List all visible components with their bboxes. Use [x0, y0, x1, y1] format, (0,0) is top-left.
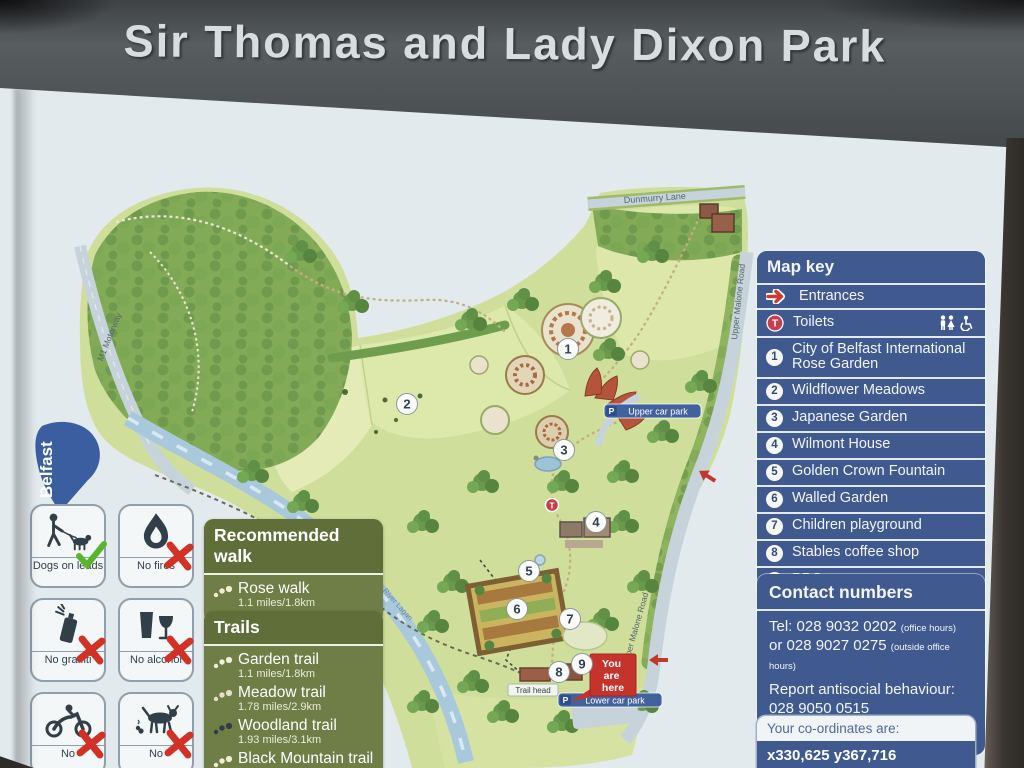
walk-distance: 1.1 miles/1.8km — [238, 597, 315, 610]
belfast-logo-text: Belfast — [37, 441, 56, 498]
park-rules-grid: Dogs on leads No fires — [30, 504, 202, 768]
key-item: 3 Japanese Garden — [757, 404, 985, 431]
key-label: Wilmont House — [792, 437, 890, 452]
cross-icon — [162, 634, 196, 671]
key-number-badge: 1 — [766, 349, 783, 366]
map-marker: 8 — [549, 662, 570, 683]
rule-no-alcohol: No alcohol — [118, 598, 194, 682]
key-number-badge: 5 — [766, 464, 783, 481]
cross-icon — [162, 540, 196, 577]
key-item: 2 Wildflower Meadows — [757, 377, 985, 404]
cross-icon — [74, 728, 108, 765]
trail-garden: Garden trail 1.1 miles/1.8km — [212, 652, 375, 681]
trail-distance: 1.1 miles/1.8km — [238, 668, 319, 681]
map-marker: 5 — [519, 561, 540, 582]
p-icon: P — [609, 406, 615, 416]
trail-distance: 1.78 miles/2.9km — [238, 701, 326, 714]
map-marker: 9 — [572, 654, 593, 675]
p-icon: P — [563, 695, 569, 705]
key-label: Walled Garden — [792, 491, 888, 506]
key-label: Wildflower Meadows — [792, 383, 925, 398]
contact-tel-2: or 028 9027 0275 (outside office hours) — [769, 637, 973, 675]
svg-text:6: 6 — [513, 602, 520, 617]
svg-text:3: 3 — [560, 443, 567, 458]
rule-no-graffiti: No graffiti — [30, 598, 106, 682]
trail-name: Black Mountain trail — [238, 751, 373, 767]
svg-text:T: T — [550, 502, 555, 511]
trail-dots-icon — [212, 689, 234, 703]
svg-text:5: 5 — [525, 564, 532, 579]
trail-dots-icon — [212, 656, 234, 670]
map-marker: 2 — [397, 394, 418, 415]
rule-no-fires: No fires — [118, 504, 194, 588]
trail-dots-icon — [212, 722, 234, 736]
key-entrances: Entrances — [757, 283, 985, 308]
rule-dogs-on-leads: Dogs on leads — [30, 504, 106, 588]
key-number-badge: 8 — [766, 545, 783, 562]
svg-text:1: 1 — [564, 342, 571, 357]
recommended-walk-title: Recommended walk — [204, 519, 383, 575]
map-marker: 3 — [554, 440, 575, 461]
key-number-badge: 2 — [766, 383, 783, 400]
map-key-title: Map key — [757, 251, 985, 283]
photo-corner-shadow — [824, 0, 1024, 30]
key-label: Entrances — [799, 289, 864, 304]
toilets-accessibility-icons — [938, 315, 976, 331]
svg-text:9: 9 — [578, 657, 585, 672]
coordinates-panel: Your co-ordinates are: x330,625 y367,716 — [757, 716, 975, 768]
svg-text:4: 4 — [592, 515, 600, 530]
coordinates-title: Your co-ordinates are: — [757, 716, 975, 741]
svg-text:Lower car park: Lower car park — [585, 696, 645, 706]
trail-dots-icon — [212, 755, 234, 768]
key-item: 4 Wilmont House — [757, 431, 985, 458]
svg-text:T: T — [772, 319, 778, 330]
trail-name: Meadow trail — [238, 685, 326, 701]
map-marker: 1 — [558, 339, 579, 360]
key-number-badge: 7 — [766, 518, 783, 535]
svg-text:Trail head: Trail head — [515, 686, 550, 695]
trails-title: Trails — [204, 611, 383, 646]
trail-name: Garden trail — [238, 652, 319, 668]
key-label: Stables coffee shop — [792, 545, 919, 560]
trail-head-label: Trail head — [508, 684, 558, 696]
park-sign-photo: Dunmurry Lane Upper Malone Road Upper Ma… — [0, 0, 1024, 768]
trail-name: Woodland trail — [238, 718, 337, 734]
key-item: 7 Children playground — [757, 512, 985, 539]
trail-distance: 1.93 miles/3.1km — [238, 734, 337, 747]
key-item: 1 City of Belfast International Rose Gar… — [757, 336, 985, 376]
cross-icon — [74, 634, 108, 671]
key-label: Children playground — [792, 518, 922, 533]
walk-rose-walk: Rose walk 1.1 miles/1.8km — [212, 581, 375, 610]
key-number-badge: 6 — [766, 491, 783, 508]
key-label: City of Belfast International Rose Garde… — [792, 342, 976, 372]
photo-corner-shadow — [0, 0, 120, 34]
key-label: Golden Crown Fountain — [792, 464, 945, 479]
svg-text:7: 7 — [566, 612, 573, 627]
recommended-walk-panel: Recommended walk Rose walk 1.1 miles/1.8… — [204, 519, 383, 623]
svg-text:Upper car park: Upper car park — [628, 407, 688, 417]
trail-meadow: Meadow trail 1.78 miles/2.9km — [212, 685, 375, 714]
key-number-badge: 4 — [766, 437, 783, 454]
svg-text:2: 2 — [403, 397, 410, 412]
upper-car-park-label: P Upper car park — [604, 404, 701, 418]
check-icon — [74, 540, 108, 575]
key-item: 8 Stables coffee shop — [757, 539, 985, 566]
toilet-map-marker: T — [546, 499, 559, 512]
map-key-panel: Map key Entrances T Toilets — [757, 251, 985, 593]
map-marker: 4 — [586, 512, 607, 533]
coordinates-value: x330,625 y367,716 — [757, 741, 975, 768]
cross-icon — [162, 728, 196, 765]
toilet-badge-icon: T — [766, 314, 784, 332]
contact-tel-1: Tel: 028 9032 0202 (office hours) — [769, 618, 973, 637]
key-label: Toilets — [793, 315, 834, 330]
trails-panel: Trails Garden trail 1.1 miles/1.8km Mead… — [204, 611, 383, 768]
trail-black-mountain: Black Mountain trail 10 miles/16 km — [212, 751, 375, 768]
rule-no-motorcycles: No — [30, 692, 106, 768]
walk-name: Rose walk — [238, 581, 315, 597]
contact-report-1: Report antisocial behaviour: — [769, 681, 973, 700]
svg-text:You are here: You are here — [602, 658, 624, 694]
svg-text:8: 8 — [555, 665, 562, 680]
key-item: 6 Walled Garden — [757, 485, 985, 512]
trail-woodland: Woodland trail 1.93 miles/3.1km — [212, 718, 375, 747]
contact-title: Contact numbers — [757, 574, 985, 611]
map-marker: 7 — [560, 609, 581, 630]
rule-no-dog-fouling: No — [118, 692, 194, 768]
key-number-badge: 3 — [766, 410, 783, 427]
trail-dots-icon — [212, 585, 234, 599]
key-label: Japanese Garden — [792, 410, 907, 425]
entrance-arrow-icon — [766, 289, 790, 304]
key-item: 5 Golden Crown Fountain — [757, 458, 985, 485]
map-marker: 6 — [507, 599, 528, 620]
key-toilets: T Toilets — [757, 308, 985, 336]
